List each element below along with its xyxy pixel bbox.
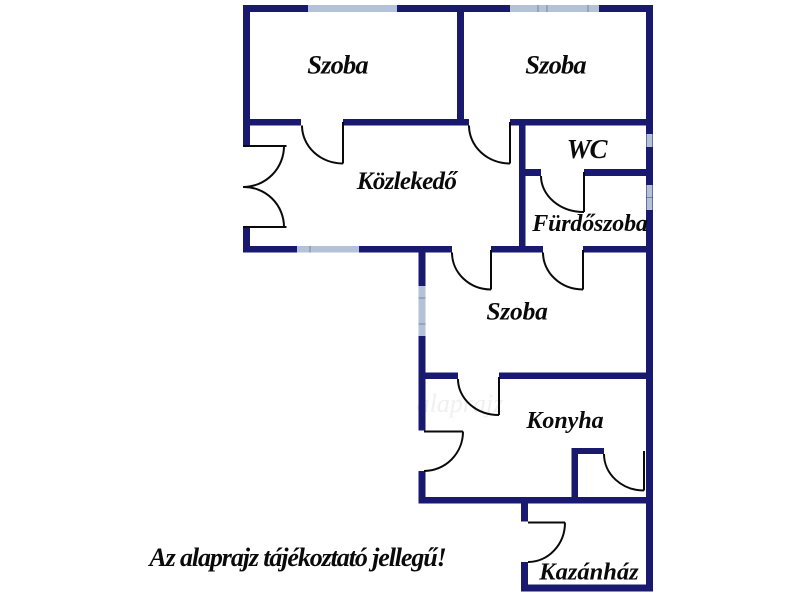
svg-text:Konyha: Konyha — [525, 408, 603, 434]
svg-text:WC: WC — [567, 134, 609, 164]
svg-text:Szoba: Szoba — [486, 297, 548, 326]
svg-text:Az alaprajz tájékoztató jelleg: Az alaprajz tájékoztató jellegű! — [147, 543, 445, 572]
svg-text:Szoba: Szoba — [307, 50, 368, 80]
svg-text:Szoba: Szoba — [525, 50, 586, 80]
svg-text:Kazánház: Kazánház — [538, 559, 639, 586]
svg-text:Közlekedő: Közlekedő — [356, 168, 458, 195]
svg-text:Fürdőszoba: Fürdőszoba — [531, 211, 648, 237]
